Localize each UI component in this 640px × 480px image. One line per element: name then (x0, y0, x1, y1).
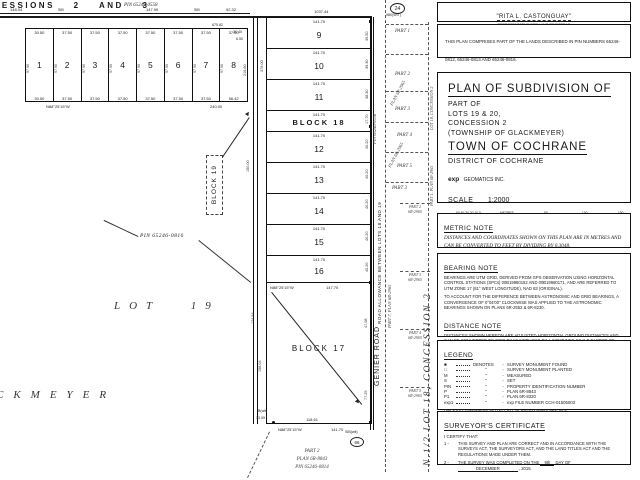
bearing-note-title: BEARING NOTE (444, 265, 498, 273)
dashed-division (386, 122, 428, 123)
legend-dash (456, 402, 470, 404)
lot-number: 13 (314, 175, 323, 185)
part-label: PART 3 (392, 186, 407, 191)
dimension: 92.32 (226, 7, 236, 12)
lot-dimension: 141.70 (267, 195, 371, 200)
lot-dimension: 56.42 (220, 96, 247, 101)
lot-depth-dimension: 97.90 (54, 55, 58, 73)
surveyor-firm: exp GEOMATICS INC. (448, 168, 630, 186)
part-label: PART 2 (395, 72, 410, 77)
metric-note-title: METRIC NOTE (444, 225, 493, 233)
lot-dimension: 37.50 (82, 30, 109, 35)
lot-number: 14 (314, 206, 323, 216)
legend-title: LEGEND (444, 352, 473, 360)
dimension: 40.20 (365, 135, 369, 149)
lot-parcel: 141.70 11 (267, 80, 371, 111)
lot-dimension: 30.50 (26, 30, 53, 35)
plan-title-town: TOWN OF COCHRANE (448, 141, 587, 155)
dimension: 47.08 (364, 312, 368, 328)
lot-parcel: 37.50 3 37.50 97.90 (82, 29, 110, 101)
comprises-box: THIS PLAN COMPRISES PART OF THE LANDS DE… (437, 24, 631, 58)
scale-ratio: 1:2000 (488, 197, 509, 204)
pin-leader-line (104, 220, 139, 237)
scale-label: SCALE (448, 197, 473, 204)
legend-separator: - (499, 400, 507, 405)
title-block: PLAN OF SUBDIVISION OF PART OF LOTS 19 &… (437, 72, 631, 203)
lot-parcel: 141.70 16 (267, 256, 371, 282)
legend-dash (456, 385, 470, 387)
certificate-item: 1 - THIS SURVEY AND PLAN ARE CORRECT AND… (444, 441, 624, 457)
lot-dimension: 141.70 (267, 50, 371, 55)
plan-title-township: (TOWNSHIP OF GLACKMEYER) (448, 130, 630, 137)
monument-number: 24 (395, 6, 401, 12)
dimension: 40.20 (365, 165, 369, 179)
survey-monument-marker (369, 421, 372, 424)
certificate-box: SURVEYOR'S CERTIFICATE I CERTIFY THAT: 1… (437, 411, 631, 465)
dimension: 13.09 (256, 416, 265, 420)
comprises-text: THIS PLAN COMPRISES PART OF THE LANDS DE… (445, 39, 620, 62)
bearing-note-paragraph2: TO ACCOUNT FOR THE DIFFERENCE BETWEEN AS… (444, 294, 624, 310)
lot-depth-dimension: 97.90 (137, 55, 141, 73)
dashed-division (386, 54, 428, 55)
plan-title-concession: CONCESSION 2 (448, 120, 630, 127)
lot-dimension: 37.50 (193, 30, 220, 35)
certificate-item-text: DAY OF (555, 460, 570, 465)
lot-dimension: 141.70 (267, 257, 371, 262)
dimension: 240.00 (210, 104, 222, 109)
legend-dash (456, 364, 470, 366)
dimension: 150.00 (246, 148, 250, 172)
lot-number: 15 (314, 237, 323, 247)
firm-logo-text: exp (448, 176, 459, 183)
dimension: 1037.44 (314, 9, 328, 14)
dimension: 30.40 (233, 30, 242, 34)
title-panel: "RITA L. CASTONGUAY" REPRESENTATIVE FOR … (437, 0, 640, 480)
legend-dash (456, 396, 470, 398)
dimension: 147.99 (146, 7, 158, 12)
firm-name: GEOMATICS INC. (464, 177, 505, 183)
certificate-title: SURVEYOR'S CERTIFICATE (444, 423, 545, 431)
monument-label: SIB (194, 8, 200, 12)
lot-number: 10 (314, 61, 323, 71)
dimension: 40.20 (365, 195, 369, 209)
lot-number: 12 (314, 144, 323, 154)
part-label: PART 3 (395, 107, 410, 112)
block18-strip: 141.70 BLOCK 18 (267, 111, 371, 132)
lot-depth-dimension: 97.90 (82, 55, 86, 73)
lot-parcel: 141.70 12 (267, 132, 371, 163)
registrar-name: "RITA L. CASTONGUAY" (497, 14, 572, 21)
lot-dimension: 37.50 (165, 30, 192, 35)
part1-side-label: PART 1, PLAN 6R-2965 (429, 142, 434, 206)
survey-monument-marker (272, 421, 275, 424)
lot-dimension: 141.70 (267, 226, 371, 231)
part-plan: 6R-2965 (408, 209, 422, 214)
lot-number: 1 (26, 60, 53, 70)
pin-label: PIN 65246-0816 (140, 233, 184, 239)
lot-parcel: 141.70 14 (267, 194, 371, 225)
lot19-label: LOT 19 (114, 300, 220, 312)
lot-parcel: 37.50 7 37.50 97.90 (193, 29, 221, 101)
block19-label: BLOCK 19 (211, 165, 218, 204)
dimension: 118.61 (306, 417, 318, 422)
lot-parcel: 141.70 9 (267, 18, 371, 49)
lots-1-8-block: 30.50 1 30.50 97.90 37.50 2 37.50 97.90 … (25, 28, 248, 102)
north-half-lot18-label: N.1/2 LOT 18, CONCESSION 2 (423, 206, 433, 466)
lots-9-16-block: 141.70 9 141.70 10 141.70 11 141.70 BLOC… (266, 17, 372, 283)
distance-note-title: DISTANCE NOTE (444, 323, 501, 331)
dimension: 38.30 (365, 85, 369, 99)
monument-label: 980(WIT) (386, 13, 401, 17)
survey-monument-marker (369, 20, 372, 23)
monument-label: SIB (58, 8, 64, 12)
scale-line: SCALE 1:2000 (448, 189, 630, 207)
lot-dimension: 37.50 (137, 30, 164, 35)
legend-dash (456, 391, 470, 393)
bearing-label: N88°25'15"W (278, 427, 302, 432)
metric-note-box: METRIC NOTE DISTANCES AND COORDINATES SH… (437, 213, 631, 248)
dimension: 141.70 (331, 427, 343, 432)
dimension: 39.30 (365, 55, 369, 69)
plan-number-diagonal: PLAN 6R-2965 (389, 80, 406, 107)
plan-title-district: DISTRICT OF COCHRANE (448, 158, 630, 165)
certificate-item: 2 - THE SURVEY WAS COMPLETED ON THE 9th … (444, 460, 624, 472)
monument-label: IB(wit) (257, 409, 267, 413)
dimension: 216.60 (243, 62, 247, 76)
dimension: 675.82 (212, 23, 223, 27)
lot-parcel: 37.50 4 37.50 97.90 (109, 29, 137, 101)
part-plan: 6R-2965 (408, 335, 422, 340)
lot-parcel: 37.50 6 37.50 97.90 (165, 29, 193, 101)
lot-dimension: 141.70 (267, 112, 371, 117)
glackmeyer-label: CKMEYER (0, 389, 116, 401)
bearing-distance-box: BEARING NOTE BEARINGS ARE UTM GRID, DERI… (437, 253, 631, 337)
lot-number: 4 (109, 60, 136, 70)
certificate-item-number: 2 - (444, 460, 458, 472)
dashed-boundary (385, 0, 386, 472)
legend-dash (456, 380, 470, 382)
part-label: PART 5 (397, 164, 412, 169)
lot-dimension: 37.50 (54, 30, 81, 35)
certificate-item-text: THIS SURVEY AND PLAN ARE CORRECT AND IN … (458, 441, 624, 457)
dashed-division (386, 182, 428, 183)
lot-dimension: 141.70 (267, 164, 371, 169)
lot-parcel: 141.70 15 (267, 225, 371, 256)
lot-parcel: 37.50 5 37.50 97.90 (137, 29, 165, 101)
part-plan: 6R-2965 (408, 277, 422, 282)
lot-parcel: 141.70 10 (267, 49, 371, 80)
metric-note-body: DISTANCES AND COORDINATES SHOWN ON THIS … (444, 235, 624, 250)
block19-callout: BLOCK 19 (206, 155, 223, 215)
pin-leader-line (198, 240, 251, 283)
lot-dimension: 37.50 (109, 96, 136, 101)
lot-dimension: 37.50 (54, 96, 81, 101)
lot-depth-dimension: 97.90 (26, 55, 30, 73)
road-line-top-a (0, 13, 250, 14)
dimension: 148.04 (10, 7, 22, 12)
dimension: 39.50 (365, 27, 369, 41)
bearing-label: N88°25'15"W (46, 104, 70, 109)
plan-number: PLAN 6R-8843 (280, 457, 344, 462)
lot-dimension: 141.70 (267, 133, 371, 138)
survey-monument-marker (369, 281, 372, 284)
lot-number: 16 (314, 266, 323, 276)
road-width-value: 66 (354, 440, 359, 445)
bearing-note-paragraph1: BEARINGS ARE UTM GRID, DERIVED FROM GPS … (444, 275, 624, 291)
lot-depth-dimension: 97.90 (193, 55, 197, 73)
lot-parcel: 141.70 13 (267, 163, 371, 194)
survey-plan-page: SESSIONS 2 AND 3 PIN 65246-0558 148.04 S… (0, 0, 640, 480)
certificate-item-text: , 2015. (519, 466, 532, 471)
dimension: 158.04 (258, 352, 262, 372)
lot-number: 5 (137, 60, 164, 70)
part7-label: PART 7, PLAN 6R-2965 (387, 230, 392, 328)
dimension: 40.20 (365, 258, 369, 272)
certificate-day-blank: 9th (540, 460, 554, 466)
block18-label: BLOCK 18 (292, 118, 345, 127)
lot-number: 9 (317, 30, 322, 40)
lot-depth-dimension: 97.90 (165, 55, 169, 73)
boundary-dashed-line (247, 432, 270, 478)
lot-dimension: 37.50 (137, 96, 164, 101)
lot-dimension: 37.50 (82, 96, 109, 101)
dimension: 6.50 (236, 37, 243, 41)
lot-number: 11 (315, 92, 324, 102)
legend-box: LEGEND ■ DENOTES - SURVEY MONUMENT FOUND… (437, 340, 631, 410)
certificate-item-number: 1 - (444, 441, 458, 457)
legend-symbol: exp1 (444, 400, 456, 405)
part-label: PART 4 (397, 133, 412, 138)
lot-dimension: 37.50 (165, 96, 192, 101)
lot-dimension: 37.50 (109, 30, 136, 35)
lot-depth-dimension: 97.90 (109, 55, 113, 73)
certificate-month-blank: DECEMBER (458, 466, 518, 472)
legend-ditto: " (473, 400, 499, 405)
lot-depth-dimension: 97.90 (220, 55, 224, 73)
legend-row: exp1 " - exp FILE NUMBER CCH-01505003 (444, 400, 624, 405)
plan-title-lots: LOTS 19 & 20, (448, 111, 630, 118)
block19-arrowhead (245, 111, 251, 117)
genier-road-label: GENIER ROAD (374, 298, 381, 386)
legend-definition: exp FILE NUMBER CCH-01505003 (507, 400, 575, 405)
lot18-side-label: LOT 18, CONCESSION 2 (429, 70, 434, 130)
lot-parcel: 30.50 1 30.50 97.90 (26, 29, 54, 101)
monument-label: SIB(wit) (345, 430, 358, 434)
lot-dimension: 141.70 (267, 81, 371, 86)
part-label: PART 2 (280, 449, 344, 454)
legend-dash (456, 369, 470, 371)
dimension: 40.20 (365, 227, 369, 241)
pin-label: PIN 65246-0814 (280, 465, 344, 470)
survey-map: SESSIONS 2 AND 3 PIN 65246-0558 148.04 S… (0, 0, 437, 480)
dimension: 376.00 (260, 48, 264, 72)
dashed-division (386, 91, 428, 92)
certificate-item-text: THE SURVEY WAS COMPLETED ON THE (458, 460, 539, 465)
part-plan: 6R-2965 (408, 393, 422, 398)
dimension: 174.54 (251, 304, 255, 324)
block17-label: BLOCK 17 (282, 344, 356, 353)
part-label: PART 1 (395, 29, 410, 34)
lot-dimension: 141.70 (267, 19, 371, 24)
survey-monument-marker (369, 125, 372, 128)
registrar-box: "RITA L. CASTONGUAY" REPRESENTATIVE FOR … (437, 2, 631, 22)
lot-parcel: 37.50 2 37.50 97.90 (54, 29, 82, 101)
dimension: 77.25 (364, 384, 368, 400)
lot-dimension: 37.50 (193, 96, 220, 101)
dashed-division (386, 24, 428, 25)
road-allowance-label: ROAD ALLOWANCE BETWEEN LOTS 18 AND 19 (377, 116, 382, 324)
plan-title-part-of: PART OF (448, 101, 630, 108)
plan-title-line1: PLAN OF SUBDIVISION OF (448, 83, 611, 97)
certificate-intro: I CERTIFY THAT: (444, 434, 624, 439)
dashed-division (386, 152, 428, 153)
road-width-bubble: 66 (350, 437, 364, 447)
lot-dimension: 30.50 (26, 96, 53, 101)
legend-dash (456, 375, 470, 377)
dimension: 17.70 (365, 110, 369, 124)
